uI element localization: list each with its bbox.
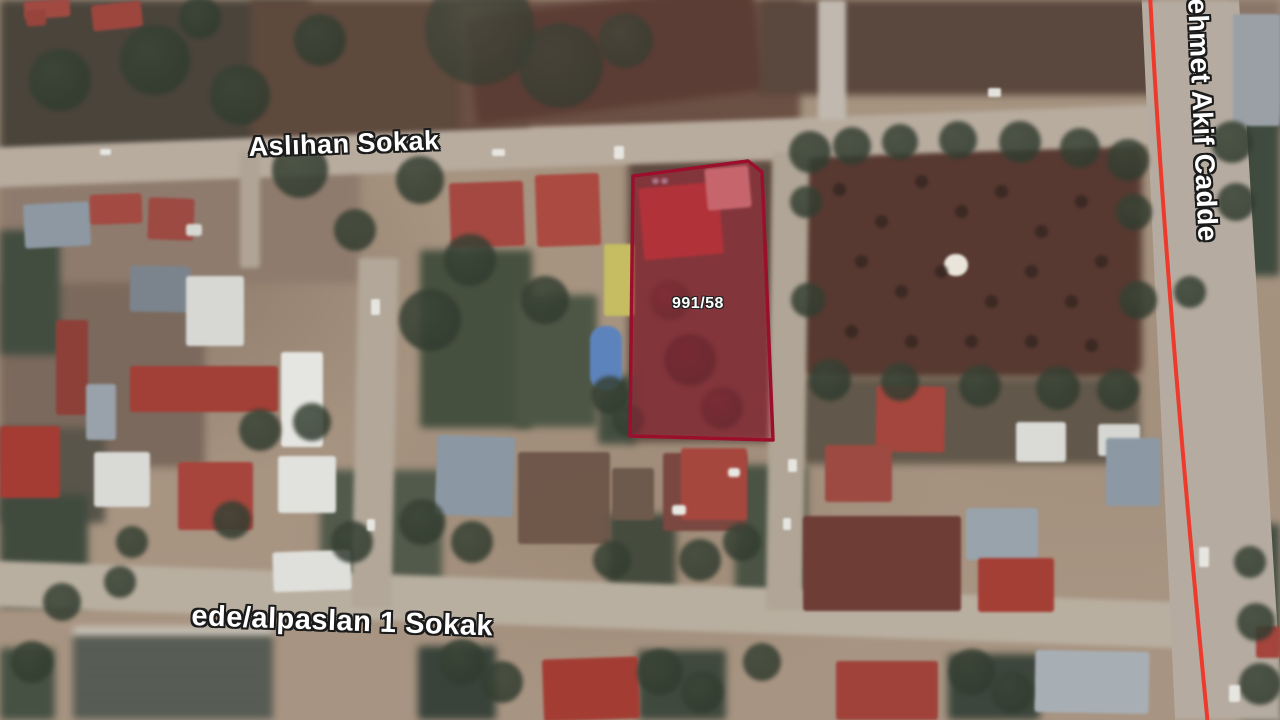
- parcel-number-label: 991/58: [672, 295, 724, 313]
- map-canvas[interactable]: Aslıhan Sokak ede/alpaslan 1 Sokak Mehme…: [0, 0, 1280, 720]
